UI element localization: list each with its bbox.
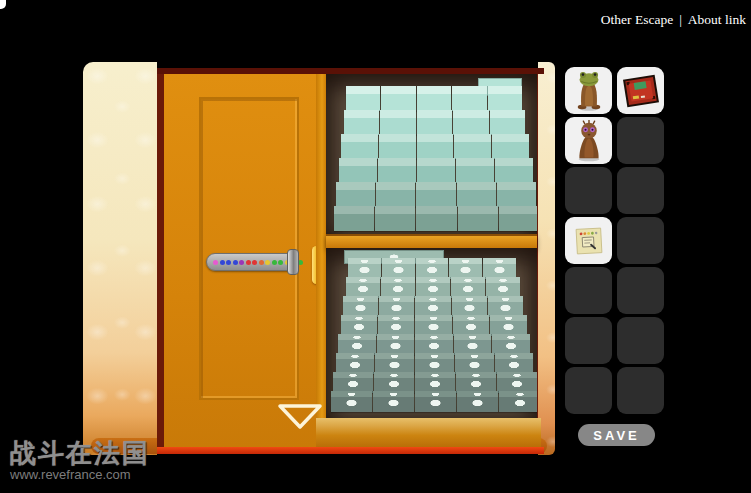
owl-figurine-icon — [570, 120, 608, 162]
inventory-slot[interactable] — [617, 317, 664, 364]
watermark-title: 战斗在法国 — [10, 440, 150, 467]
lock-knob[interactable] — [287, 249, 299, 275]
lock-dots — [213, 260, 291, 265]
inventory-slot[interactable] — [617, 167, 664, 214]
top-nav: Other Escape|About link — [601, 12, 746, 28]
nav-other-escape-link[interactable]: Other Escape — [601, 12, 673, 27]
frog-figurine-icon — [570, 70, 608, 112]
inventory-slot[interactable] — [617, 367, 664, 414]
inventory-slot[interactable] — [565, 217, 612, 264]
inventory-slot[interactable] — [565, 67, 612, 114]
box-stack-bottom[interactable] — [326, 248, 537, 418]
color-code-lock[interactable] — [206, 253, 298, 271]
inventory-slot[interactable] — [617, 217, 664, 264]
nav-separator: | — [679, 12, 682, 27]
save-button[interactable]: SAVE — [578, 424, 655, 446]
closet-door[interactable] — [160, 74, 316, 447]
inventory-slot[interactable] — [617, 67, 664, 114]
door-panel — [199, 97, 299, 400]
left-wall — [83, 62, 157, 455]
box-stack-top[interactable] — [326, 74, 537, 234]
inventory-panel — [565, 67, 664, 414]
note-card-icon — [572, 224, 606, 258]
watermark-url: www.revefrance.com — [10, 468, 150, 482]
center-stile — [316, 74, 326, 447]
right-wall — [538, 62, 555, 455]
framed-picture-icon — [621, 71, 661, 111]
inventory-slot[interactable] — [565, 167, 612, 214]
closet-bottom-frame — [316, 418, 541, 447]
game-scene — [83, 62, 555, 455]
down-arrow-button[interactable] — [276, 402, 324, 430]
inventory-slot[interactable] — [565, 317, 612, 364]
corner-sliver — [0, 0, 6, 9]
red-floor-strip — [157, 447, 544, 454]
closet — [157, 68, 538, 453]
shelf-divider — [326, 234, 537, 248]
inventory-slot[interactable] — [565, 117, 612, 164]
inventory-slot[interactable] — [617, 117, 664, 164]
game-stage: Other Escape|About link — [0, 0, 751, 493]
nav-about-link[interactable]: About link — [688, 12, 746, 27]
inventory-slot[interactable] — [565, 267, 612, 314]
watermark: 战斗在法国 www.revefrance.com — [10, 440, 150, 482]
inventory-slot[interactable] — [565, 367, 612, 414]
inventory-slot[interactable] — [617, 267, 664, 314]
